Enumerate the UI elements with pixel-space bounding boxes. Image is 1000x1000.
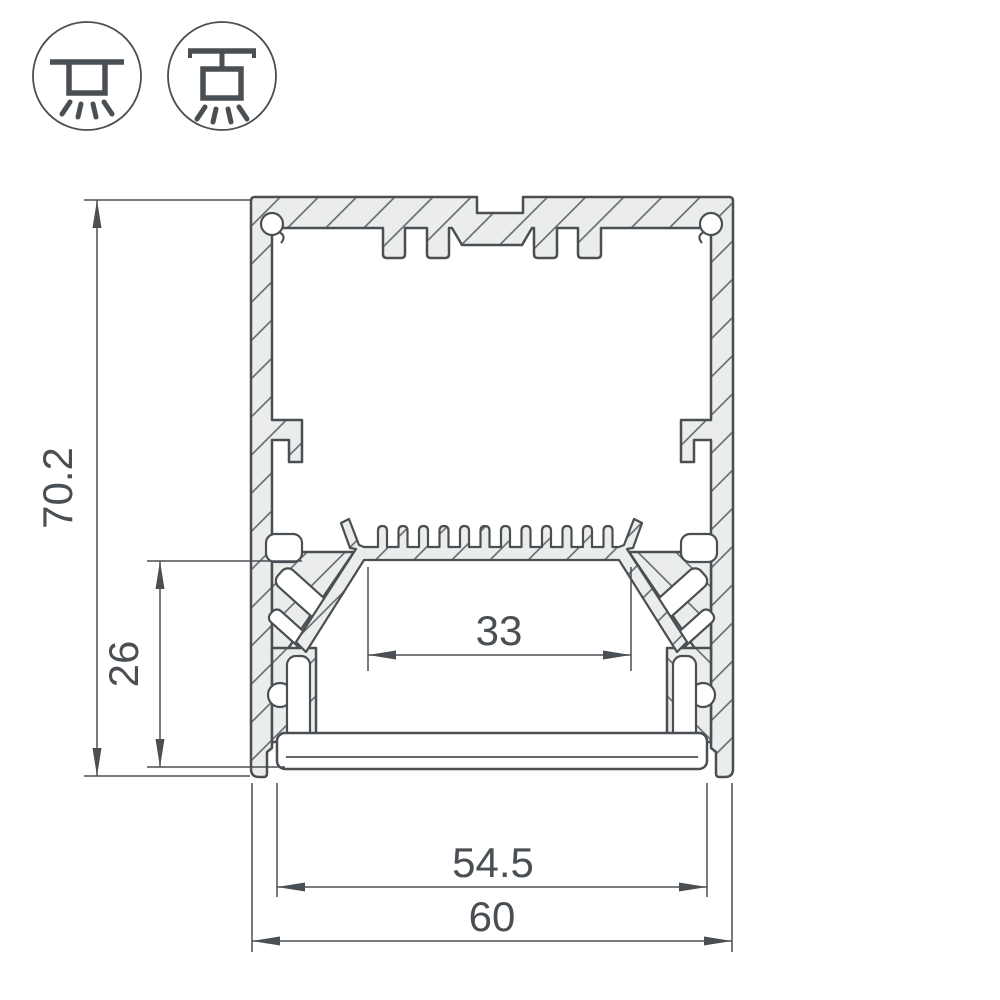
technical-drawing-page: 70.2 26 33 54.5 — [0, 0, 1000, 1000]
dimension-total-height: 70.2 — [34, 200, 250, 776]
pendant-mount-light-icon — [168, 22, 276, 130]
profile-cross-section — [251, 197, 733, 777]
surface-mount-light-icon — [33, 22, 141, 130]
dimension-label-total-width: 60 — [469, 893, 516, 940]
dimension-label-total-height: 70.2 — [34, 447, 81, 529]
clip-channel — [287, 656, 310, 740]
mount-icons — [33, 22, 276, 130]
diffuser-plate — [277, 733, 707, 769]
profile-shell — [251, 197, 733, 777]
light-rays-icon — [197, 107, 247, 122]
dimension-diffuser-width: 54.5 — [277, 783, 707, 897]
dimension-inner-width: 33 — [368, 567, 631, 671]
dimension-layer: 70.2 26 33 54.5 — [34, 200, 732, 952]
dimension-label-inner-width: 33 — [476, 607, 523, 654]
dimension-label-diffuser-width: 54.5 — [452, 839, 534, 886]
dimension-label-lower-inner-height: 26 — [100, 641, 147, 688]
light-rays-icon — [62, 102, 112, 117]
clip-finger — [266, 534, 302, 562]
profile-drawing: 70.2 26 33 54.5 — [0, 0, 1000, 1000]
